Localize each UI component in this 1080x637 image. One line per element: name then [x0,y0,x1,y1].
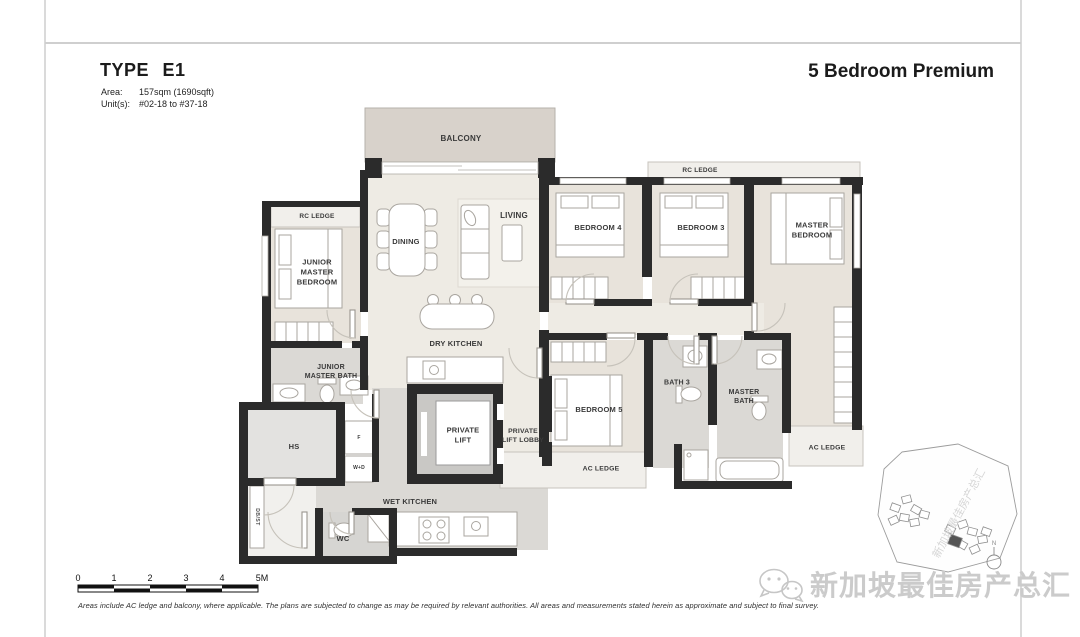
wet-kitchen-sink [464,517,488,536]
label-bedroom-5: BEDROOM 5 [554,405,644,415]
label-private-lift-lobby: PRIVATE LIFT LOBBY [500,428,546,446]
label-dining: DINING [371,237,441,247]
label-private-lift: PRIVATE LIFT [438,425,488,445]
bedroom3-wardrobe [691,277,745,299]
scale-tick-5: 5M [256,573,269,583]
label-bath-3: BATH 3 [647,378,707,387]
master-wardrobe [834,307,854,423]
balcony-sliding-door [382,162,538,174]
scale-tick-4: 4 [219,573,224,583]
scale-tick-0: 0 [75,573,80,583]
label-junior-master-bedroom: JUNIOR MASTER BEDROOM [285,257,349,286]
wet-kitchen-counter [389,512,517,546]
watermark: 新加坡最佳房产总汇 [754,564,1071,604]
label-balcony: BALCONY [411,134,511,144]
label-rc-ledge-left: RC LEDGE [277,213,357,221]
label-hs: HS [274,442,314,452]
label-wc: WC [323,534,363,544]
floor-plan-svg: 0 1 2 3 4 5M [0,0,1080,637]
label-dry-kitchen: DRY KITCHEN [406,339,506,349]
bedroom4-wardrobe [551,277,608,299]
label-master-bath: MASTER BATH [718,388,770,406]
coffee-table [502,225,522,261]
label-rc-ledge-right: RC LEDGE [660,167,740,175]
label-fridge: F [349,435,369,442]
scale-bar: 0 1 2 3 4 5M [75,573,268,592]
floor-plan-page: TYPE E1 Area: 157sqm (1690sqft) Unit(s):… [0,0,1080,637]
floor-plan: 0 1 2 3 4 5M [0,0,1080,637]
label-junior-master-bath: JUNIOR MASTER BATH [302,363,360,381]
label-ac-ledge-left: AC LEDGE [561,466,641,475]
scale-tick-1: 1 [111,573,116,583]
dry-kitchen-counter [407,357,503,383]
label-ac-ledge-right: AC LEDGE [787,445,867,454]
wechat-logo-icon [754,566,806,602]
stove [419,517,449,543]
junior-master-wardrobe [275,322,333,342]
label-bedroom-3: BEDROOM 3 [656,223,746,233]
watermark-text: 新加坡最佳房产总汇 [810,564,1071,604]
disclaimer-text: Areas include AC ledge and balcony, wher… [78,601,819,610]
label-washer-dryer: W+D [346,465,372,472]
bathtub [716,458,783,482]
kitchen-island [420,304,494,329]
scale-tick-3: 3 [183,573,188,583]
scale-tick-2: 2 [147,573,152,583]
site-plan: 新加坡最佳房产总汇 N [878,444,1017,572]
label-master-bedroom: MASTER BEDROOM [779,220,845,240]
label-db-st: DB/ST [254,508,260,526]
label-wet-kitchen: WET KITCHEN [360,497,460,507]
label-living: LIVING [479,211,549,221]
compass-north-label: N [992,541,996,547]
hs-door [264,478,296,485]
bedroom5-wardrobe [551,342,606,362]
label-bedroom-4: BEDROOM 4 [553,223,643,233]
entry-door [302,512,307,548]
